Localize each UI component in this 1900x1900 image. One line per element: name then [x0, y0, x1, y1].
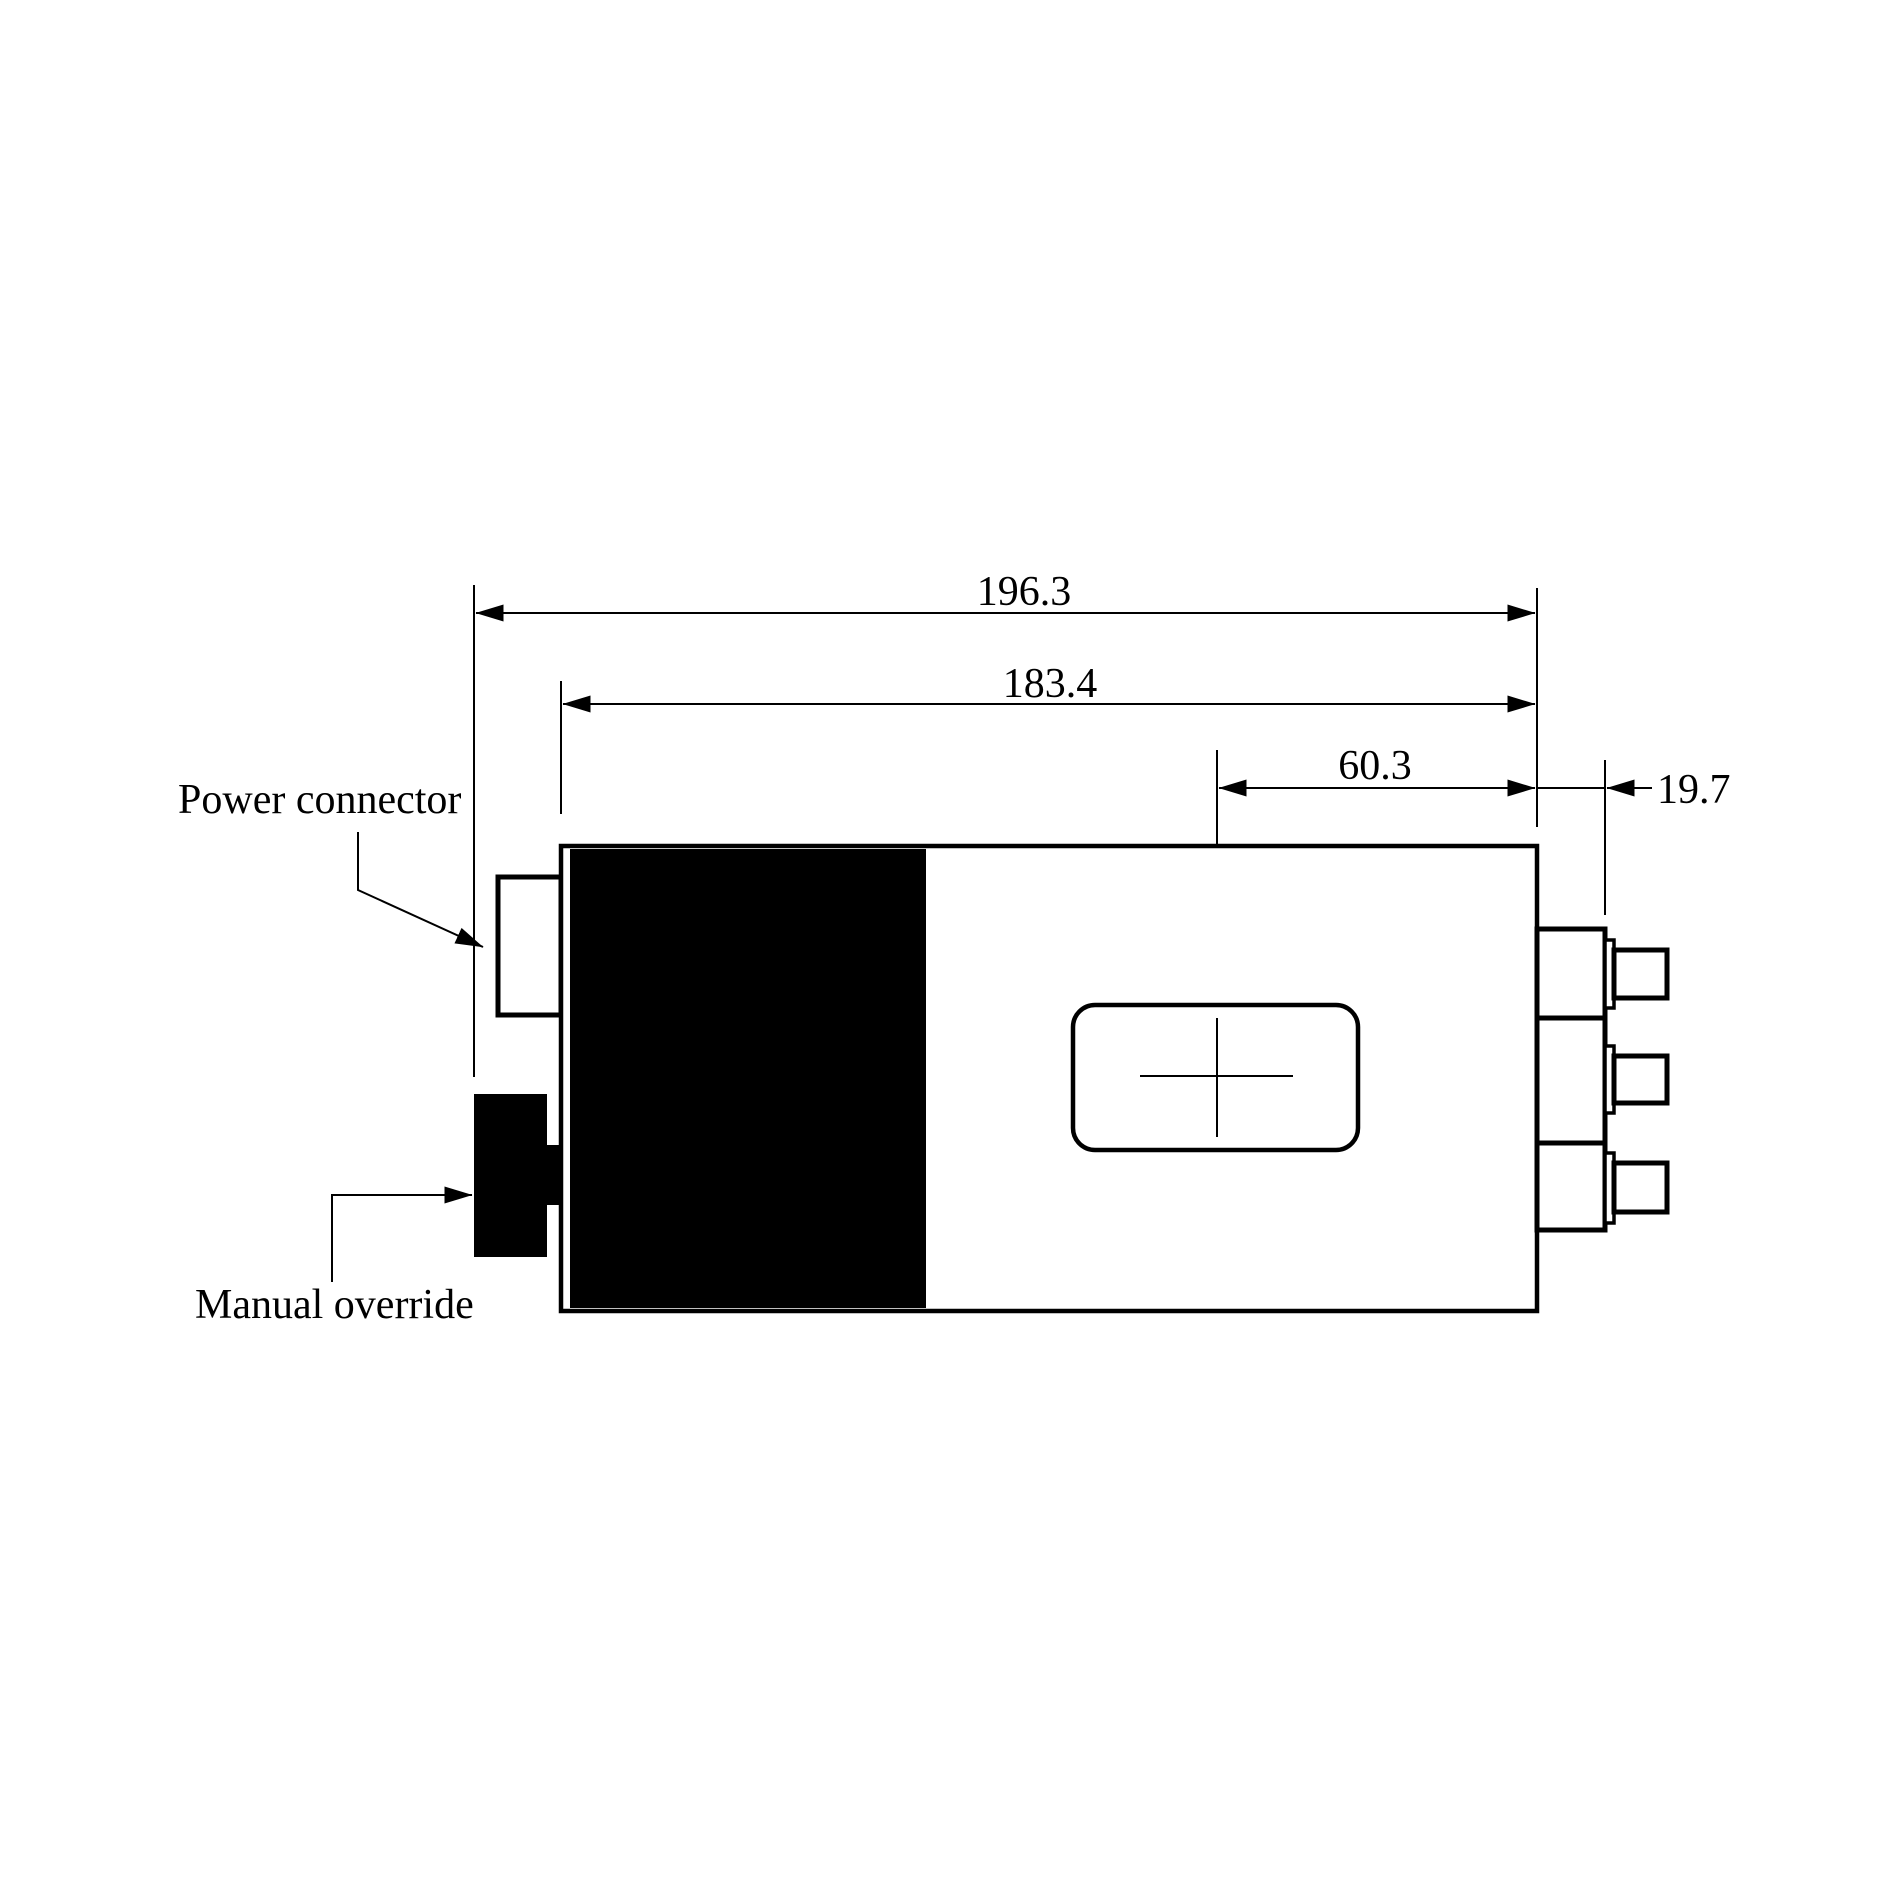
port-base-bottom [1537, 1143, 1605, 1230]
port-pin-top [1614, 950, 1667, 998]
power-connector-leader-line [358, 832, 483, 947]
power-connector-label: Power connector [178, 777, 461, 823]
dim-label-overall-length: 196.3 [977, 569, 1072, 615]
dim-label-body-length: 183.4 [1003, 661, 1098, 707]
port-pin-bottom [1614, 1163, 1667, 1212]
port-pin-middle [1614, 1056, 1667, 1103]
manual-override-leader-line [332, 1195, 472, 1282]
dim-label-port-protrusion: 19.7 [1657, 767, 1731, 813]
manual-override-knob [474, 1094, 547, 1257]
port-base-middle [1537, 1018, 1605, 1143]
manual-override-shaft [547, 1145, 561, 1205]
dim-label-window-offset: 60.3 [1338, 743, 1412, 789]
device-body-dark-section [570, 849, 926, 1308]
manual-override-label: Manual override [195, 1282, 474, 1328]
indicator-window [1073, 1005, 1358, 1150]
port-base-top [1537, 929, 1605, 1018]
drawing-canvas: 196.3 183.4 60.3 19.7 Power connector Ma… [0, 0, 1900, 1900]
power-connector-outline [498, 877, 561, 1015]
dimension-drawing: 196.3 183.4 60.3 19.7 Power connector Ma… [0, 0, 1900, 1900]
